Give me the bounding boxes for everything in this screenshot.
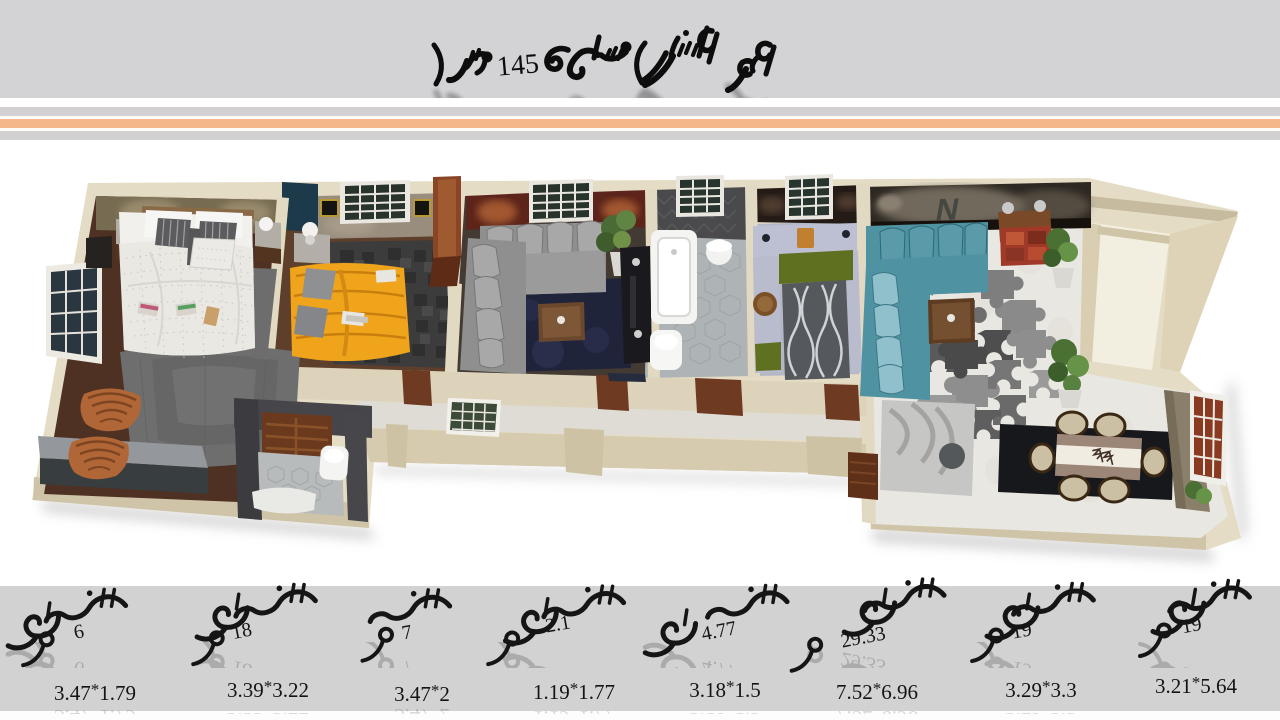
svg-text:2.1: 2.1 <box>544 611 572 637</box>
svg-text:3.29*3.3: 3.29*3.3 <box>1005 677 1077 702</box>
svg-text:3.18*1.5: 3.18*1.5 <box>689 677 761 702</box>
svg-text:19: 19 <box>1180 613 1204 638</box>
svg-text:19: 19 <box>1010 618 1034 643</box>
svg-text:18: 18 <box>230 619 254 644</box>
svg-text:145: 145 <box>496 48 541 83</box>
svg-text:3.47*2: 3.47*2 <box>394 681 450 706</box>
